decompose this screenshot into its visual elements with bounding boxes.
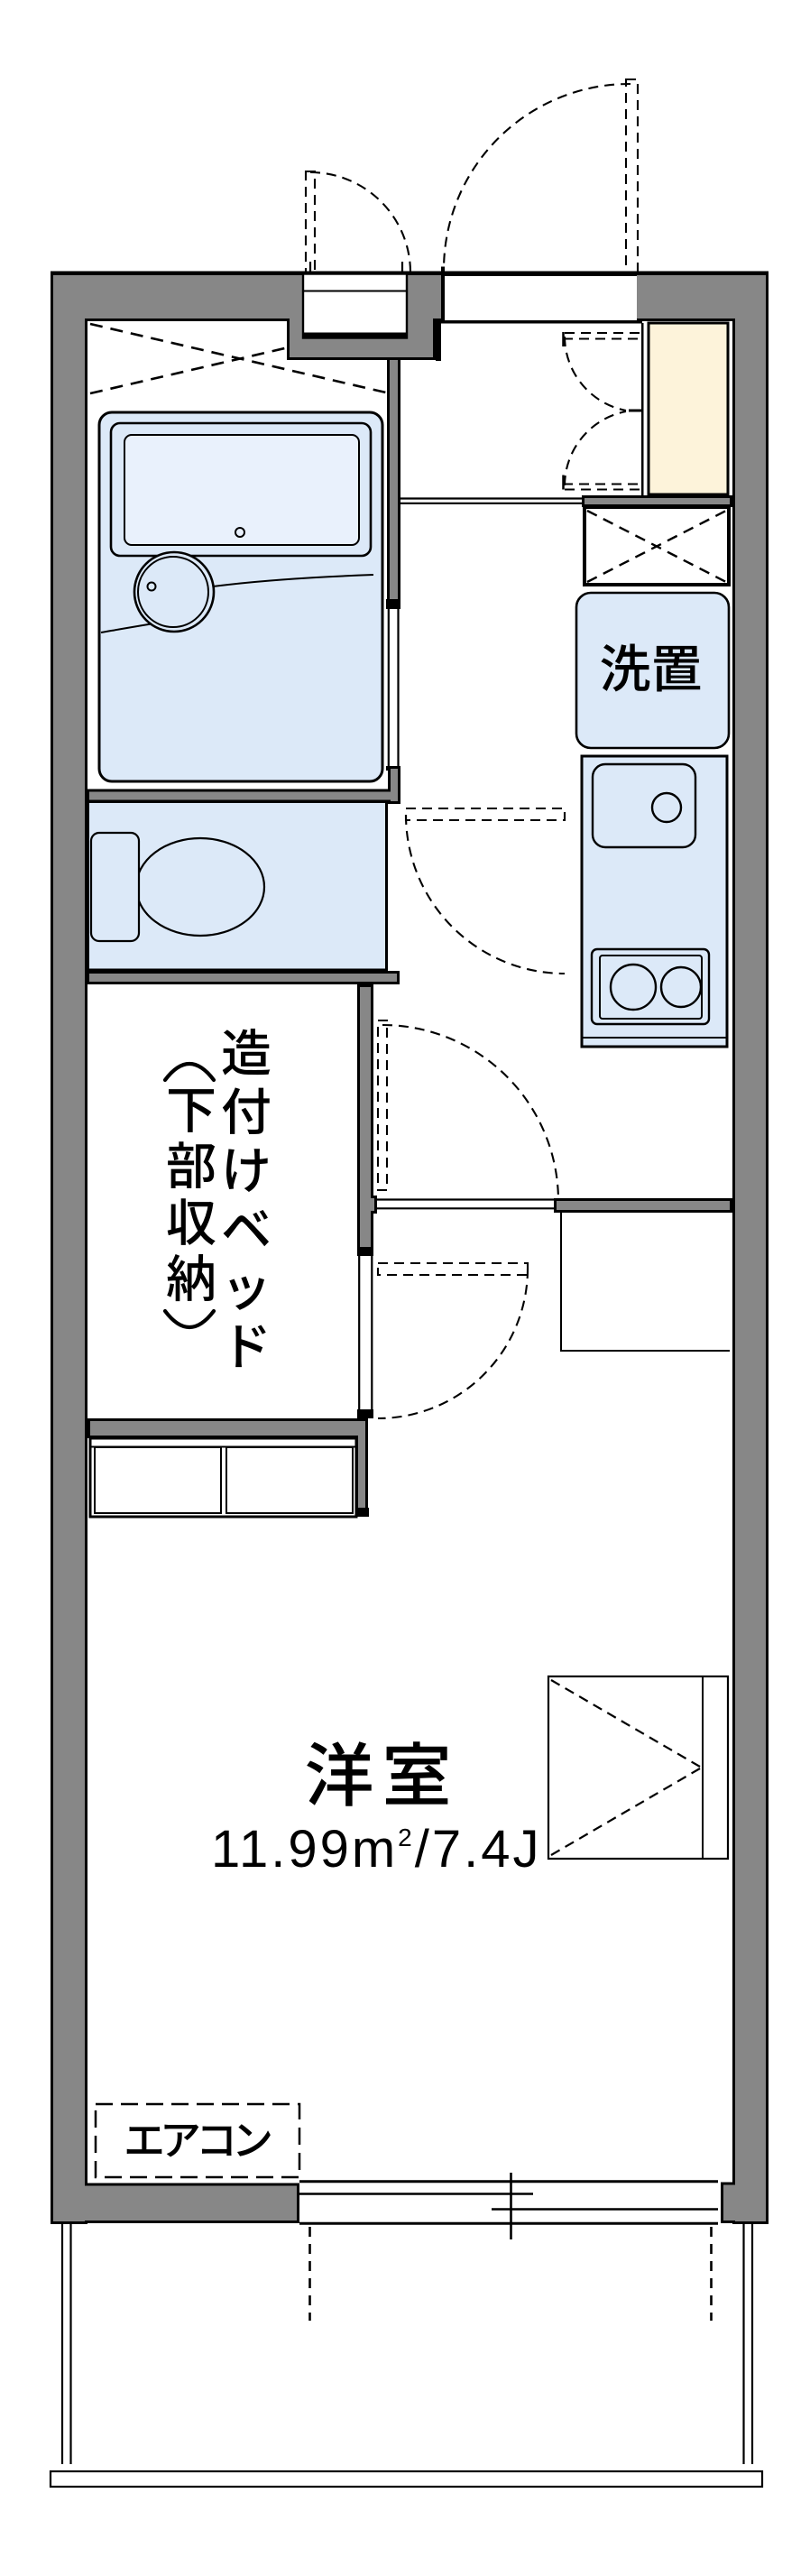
svg-text:11.99m2/7.4J: 11.99m2/7.4J bbox=[211, 1820, 541, 1879]
